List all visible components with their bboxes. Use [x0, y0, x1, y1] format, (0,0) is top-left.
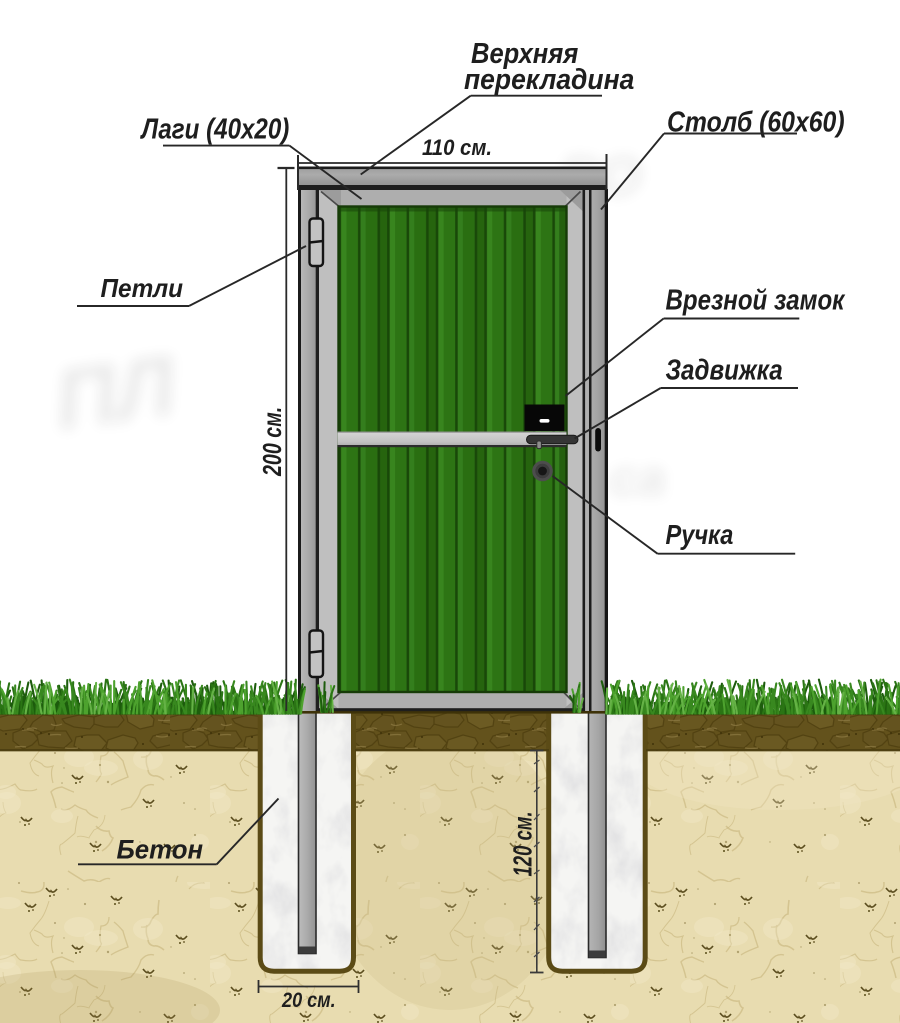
svg-text:Бетон: Бетон: [117, 835, 204, 865]
svg-text:Ручка: Ручка: [666, 519, 734, 550]
svg-text:200 см.: 200 см.: [257, 407, 287, 477]
svg-text:120 см.: 120 см.: [508, 811, 538, 876]
svg-text:перекладина: перекладина: [464, 64, 634, 96]
svg-text:Лаги (40х20): Лаги (40х20): [140, 114, 289, 146]
svg-text:Задвижка: Задвижка: [666, 355, 783, 387]
svg-text:20 см.: 20 см.: [281, 988, 336, 1012]
svg-text:ПЛ: ПЛ: [49, 338, 182, 449]
svg-text:Врезной замок: Врезной замок: [666, 285, 846, 317]
svg-text:са: са: [610, 450, 666, 506]
svg-text:Петли: Петли: [101, 273, 184, 303]
svg-text:110 см.: 110 см.: [422, 135, 492, 160]
